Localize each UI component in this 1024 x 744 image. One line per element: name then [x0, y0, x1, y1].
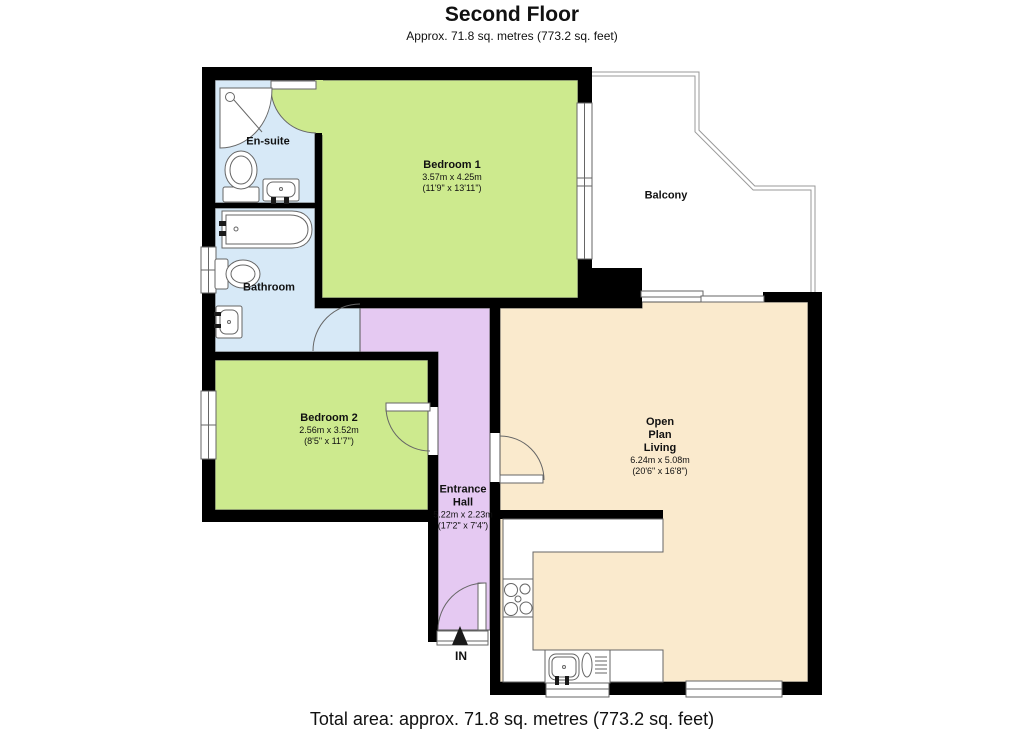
- kitchen-sink-icon: [545, 650, 610, 685]
- floorplan-drawing: [0, 0, 1024, 744]
- wall-segment: [428, 360, 438, 407]
- sliding-door-panel: [701, 296, 764, 302]
- wall-segment: [500, 510, 663, 519]
- wall-segment: [202, 352, 438, 360]
- ensuite-sink-icon: [263, 179, 299, 204]
- entrance-in-label: IN: [455, 649, 467, 663]
- wall-segment: [578, 268, 642, 308]
- bathroom-label: Bathroom: [243, 282, 295, 295]
- wall-segment: [215, 203, 322, 208]
- entrance-door: [478, 583, 486, 630]
- wall-segment: [763, 292, 808, 302]
- wall-segment: [202, 67, 592, 80]
- sliding-door-panel: [641, 291, 703, 297]
- ensuite-label: En-suite: [246, 136, 289, 149]
- bedroom2-door: [386, 403, 430, 411]
- wall-segment: [490, 308, 500, 433]
- wall-segment: [808, 292, 822, 695]
- wall-segment: [202, 510, 438, 522]
- total-area-text: Total area: approx. 71.8 sq. metres (773…: [0, 709, 1024, 730]
- wall-segment: [315, 208, 322, 308]
- ensuite-door: [271, 81, 316, 89]
- living-door: [500, 475, 543, 483]
- entrance-hall-label: Entrance Hall 5.22m x 2.23m (17'2" x 7'4…: [433, 483, 493, 530]
- open-plan-living-floor: [500, 302, 808, 682]
- hob-icon: [503, 579, 533, 617]
- open-plan-living-label: Open Plan Living 6.24m x 5.08m (20'6" x …: [630, 416, 690, 476]
- wall-segment: [315, 298, 592, 308]
- ensuite-toilet-icon: [223, 151, 259, 202]
- bathtub-icon: [219, 211, 312, 248]
- balcony-railing: [592, 74, 813, 292]
- bedroom1-label: Bedroom 1 3.57m x 4.25m (11'9" x 13'11"): [422, 159, 482, 193]
- balcony-label: Balcony: [645, 190, 688, 203]
- wall-segment: [315, 133, 322, 208]
- bathroom-sink-icon: [214, 306, 242, 338]
- floorplan-page: Second Floor Approx. 71.8 sq. metres (77…: [0, 0, 1024, 744]
- bedroom2-label: Bedroom 2 2.56m x 3.52m (8'5" x 11'7"): [299, 412, 359, 446]
- balcony-railing-inner: [592, 74, 813, 292]
